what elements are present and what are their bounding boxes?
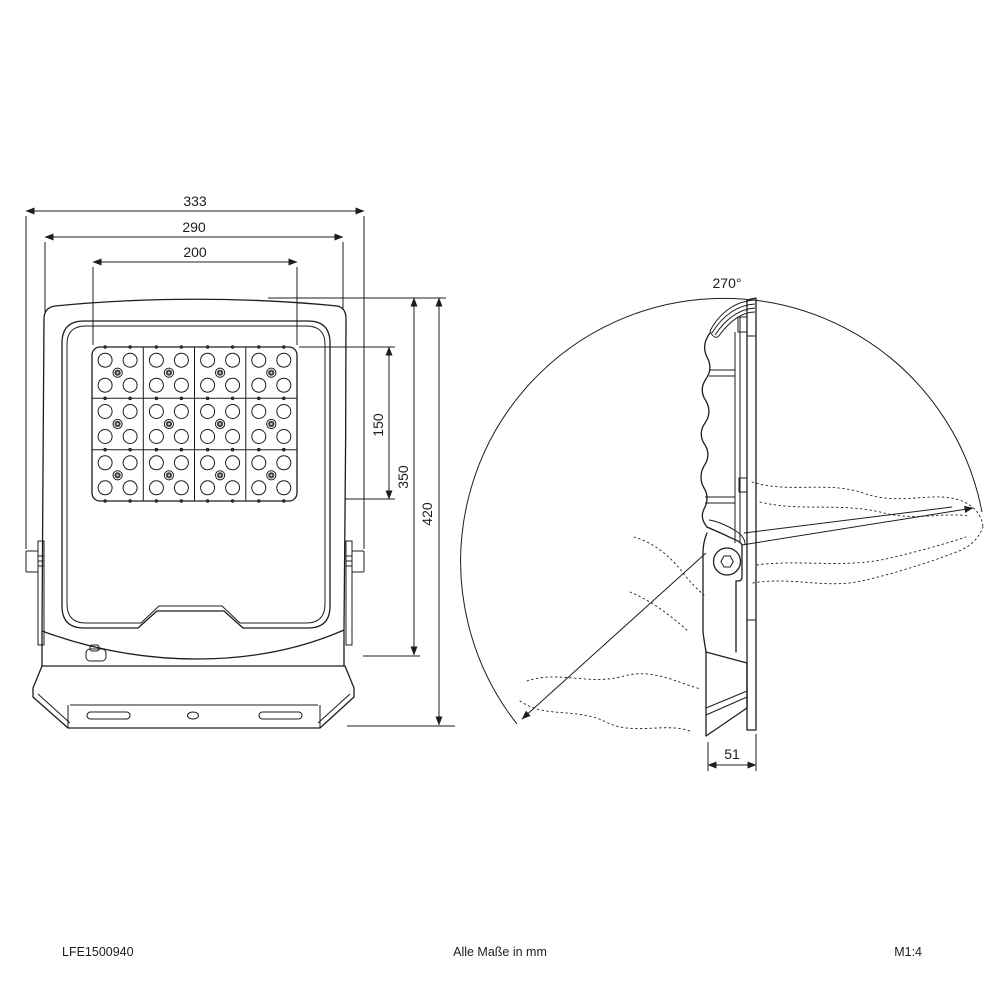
led-panel (92, 346, 297, 502)
side-view-dimensions: 51 (708, 734, 756, 771)
dim-width-body-label: 290 (182, 219, 206, 235)
rotation-ray-right-edge (744, 507, 952, 533)
rotation-arc (461, 298, 982, 724)
pedestal-neck (42, 631, 344, 666)
dim-depth-label: 51 (724, 746, 740, 762)
bracket-right (346, 541, 364, 645)
front-view (26, 299, 364, 728)
side-view: 270° (461, 275, 983, 771)
mounting-base-details (38, 694, 350, 728)
hinge-pivot (714, 548, 741, 575)
side-profile (701, 298, 756, 736)
footer: LFE1500940 Alle Maße in mm M1:4 (62, 945, 922, 959)
hinge-hex-bolt (721, 556, 733, 567)
dim-height-total-label: 420 (419, 502, 435, 526)
mounting-slot-right (259, 712, 302, 719)
drawing-canvas: 333 290 200 150 350 420 270° (0, 0, 1000, 1000)
footer-units-note: Alle Maße in mm (453, 945, 547, 959)
strap-clip-top (738, 317, 747, 332)
dim-rotation-label: 270° (713, 275, 742, 291)
footer-scale: M1:4 (894, 945, 922, 959)
bracket-left (26, 541, 44, 645)
technical-drawing-page: 333 290 200 150 350 420 270° (0, 0, 1000, 1000)
mounting-hole-center (188, 712, 199, 719)
rotated-silhouettes (520, 482, 983, 731)
mounting-slot-left (87, 712, 130, 719)
dim-width-total-label: 333 (183, 193, 207, 209)
dim-height-led-label: 150 (370, 413, 386, 437)
lens-frame-inner (67, 326, 325, 623)
rotation-ray-right (742, 508, 973, 545)
dim-width-led-label: 200 (183, 244, 207, 260)
dim-height-body-label: 350 (395, 465, 411, 489)
footer-part-number: LFE1500940 (62, 945, 134, 959)
rotation-ray-left (522, 553, 706, 719)
